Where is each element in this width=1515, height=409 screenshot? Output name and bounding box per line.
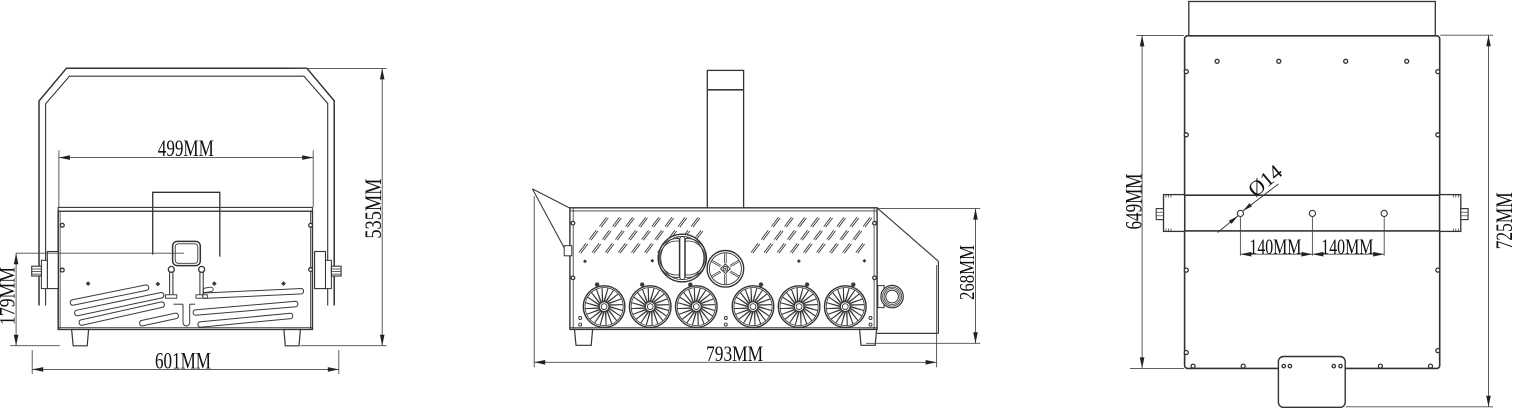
svg-text:535MM: 535MM <box>361 179 386 239</box>
svg-text:140MM: 140MM <box>1321 234 1373 259</box>
svg-text:499MM: 499MM <box>158 136 214 161</box>
svg-text:793MM: 793MM <box>706 341 763 366</box>
svg-text:725MM: 725MM <box>1492 192 1515 249</box>
svg-text:601MM: 601MM <box>155 349 211 374</box>
svg-text:268MM: 268MM <box>955 245 979 300</box>
svg-text:649MM: 649MM <box>1121 174 1146 230</box>
svg-text:179MM: 179MM <box>0 267 20 325</box>
svg-text:140MM: 140MM <box>1249 234 1301 259</box>
